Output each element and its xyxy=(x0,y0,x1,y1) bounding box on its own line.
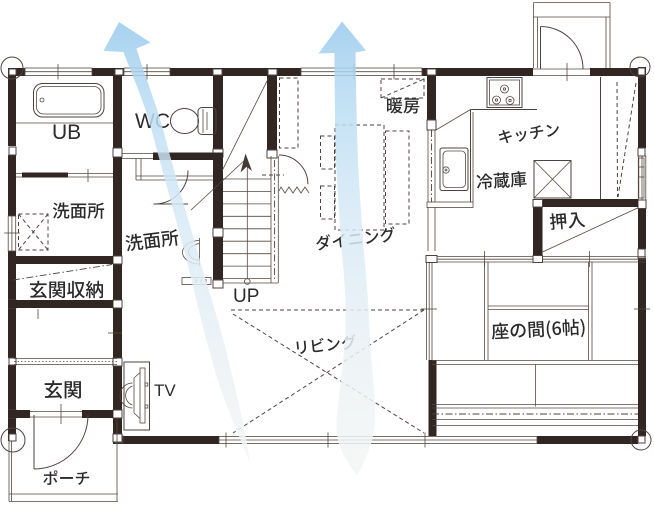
svg-text:TV: TV xyxy=(154,381,176,400)
svg-text:UB: UB xyxy=(52,121,81,144)
svg-text:UP: UP xyxy=(233,286,259,307)
